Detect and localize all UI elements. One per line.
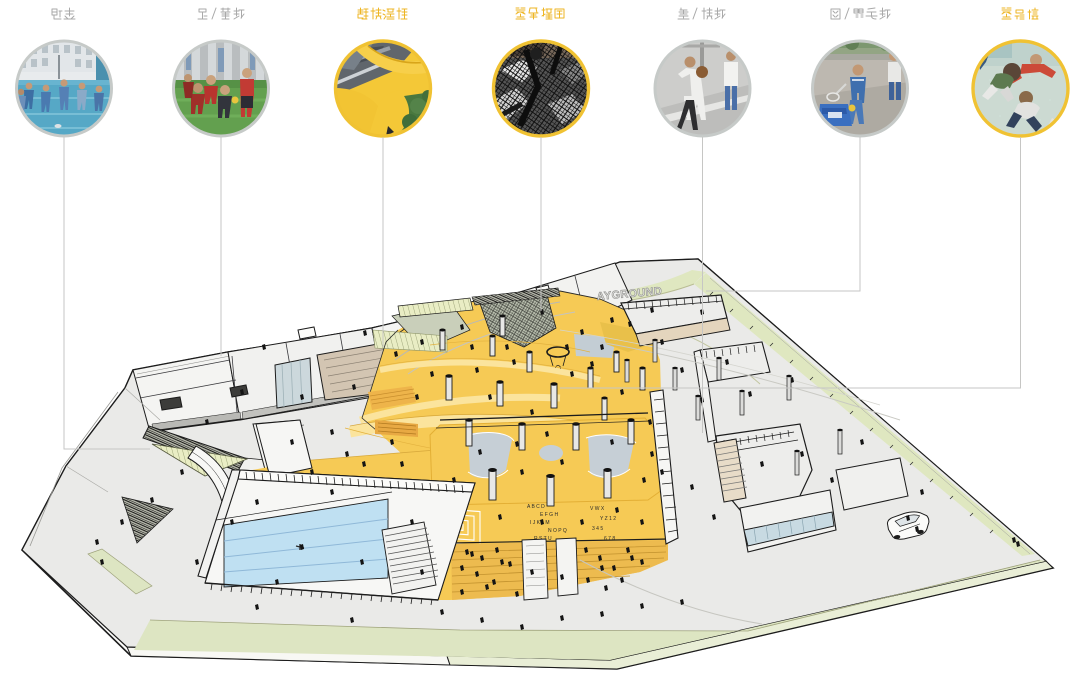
svg-text:N O P Q: N O P Q bbox=[548, 528, 567, 534]
svg-text:V W X: V W X bbox=[590, 506, 605, 512]
svg-text:I J K L M: I J K L M bbox=[530, 520, 550, 526]
svg-text:A B C D: A B C D bbox=[527, 504, 545, 510]
svg-text:Y Z 1 2: Y Z 1 2 bbox=[600, 516, 616, 522]
svg-text:E F G H: E F G H bbox=[540, 512, 558, 518]
svg-text:3 4 5: 3 4 5 bbox=[592, 526, 603, 532]
